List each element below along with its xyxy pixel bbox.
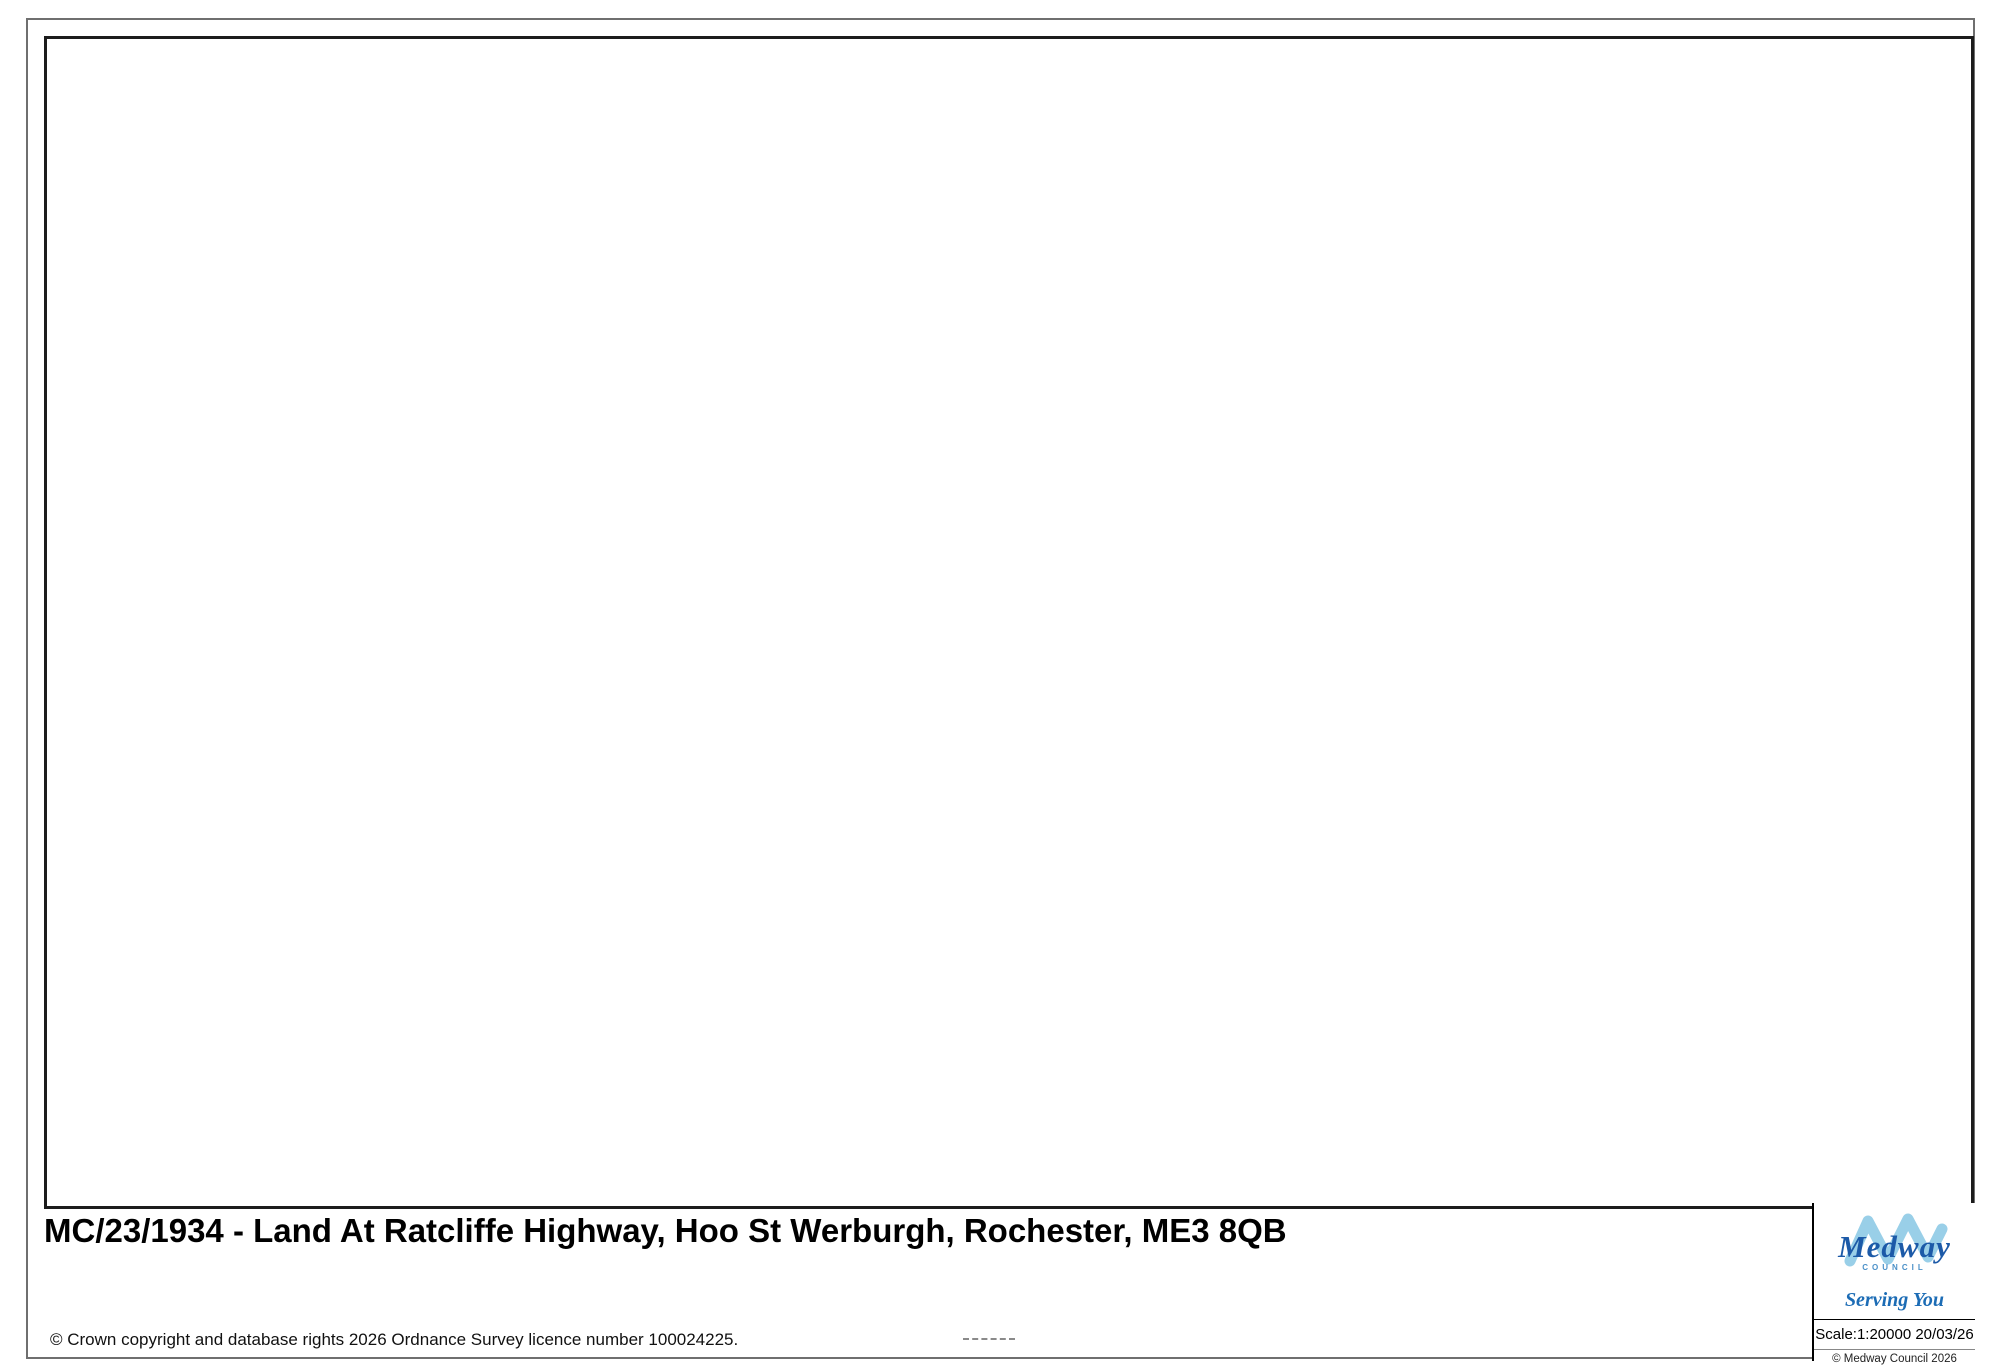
map-label-62: 62: [764, 559, 793, 585]
map-label-sand-: Sand &: [1756, 662, 1851, 691]
map-label-fm: Fm: [596, 540, 639, 570]
map-label-tu: Tu: [1943, 76, 1968, 110]
map-label-h-o-o: H O O: [102, 152, 388, 214]
map-label-43: 43: [1135, 290, 1167, 319]
map-label-hoo-st: Hoo St: [1399, 393, 1595, 457]
map-label-beluncle: Beluncle: [1806, 293, 1917, 322]
map-label-lower: Lower: [701, 1113, 810, 1153]
map-label-chattenden: Chattenden: [213, 820, 450, 860]
compass-n: N: [1883, 46, 1902, 76]
map-label-hoo-lodge: Hoo Lodge: [1057, 1016, 1199, 1045]
map-label-deangate: Deangate: [1117, 246, 1243, 275]
map-label-17: 17: [1733, 420, 1762, 446]
map-label-wood: Wood: [46, 445, 119, 473]
compass-w: W: [1785, 135, 1810, 165]
map-label-upnor: Upnor: [703, 1156, 812, 1196]
map-label-hill: Hill: [557, 1044, 597, 1073]
map-label-40: 40: [842, 934, 874, 963]
map-label-chattenden: Chattenden: [590, 497, 745, 527]
scale-mark: [963, 1338, 1015, 1340]
compass-rose: N S W E: [1785, 46, 1968, 254]
page-title: MC/23/1934 - Land At Ratcliffe Highway, …: [44, 1212, 1287, 1250]
map-label-saxon-shore-way: Saxon Shore Way: [1066, 936, 1398, 968]
map-label-acad: Acad: [938, 707, 1006, 737]
map-label-werburgh: Werburgh: [1400, 467, 1680, 531]
map-label-fm: Fm: [1892, 326, 1934, 355]
map-label-great: Great: [46, 378, 116, 406]
map-label-medway: MEDWAY: [465, 36, 1060, 54]
map-label-court: Court: [1804, 845, 1875, 874]
spot-dot: [1328, 816, 1346, 834]
parking-symbol: P: [661, 1061, 706, 1107]
map-label-abbots: Abbots: [1807, 806, 1897, 835]
compass-s: S: [1883, 224, 1900, 254]
medway-logo-name: Medway: [1814, 1229, 1975, 1265]
medway-tagline: Serving You: [1814, 1289, 1975, 1312]
map-label-street: Street: [1704, 36, 1800, 60]
map-label-lodge-hill: Lodge Hill: [267, 88, 387, 115]
map-label-ttenden: ttenden: [46, 410, 139, 438]
map-canvas: N S W E etMEDWAYLodge HillH O OP E N I N…: [44, 36, 1968, 1203]
scale-and-date: Scale:1:20000 20/03/26: [1814, 1319, 1975, 1343]
map-label-et: et: [51, 43, 73, 69]
medway-logo: Medway COUNCIL: [1814, 1203, 1975, 1289]
map-label-stonebridge: Stonebridge: [884, 639, 1051, 670]
map-label-unt: unt: [56, 841, 95, 869]
medway-logo-box: Medway COUNCIL Serving You Scale:1:20000…: [1812, 1203, 1975, 1361]
os-copyright: © Crown copyright and database rights 20…: [50, 1330, 738, 1350]
map-label-gravel-pit: Gravel Pit: [1748, 701, 1875, 730]
deangate-roundabout: [1135, 343, 1165, 373]
map-label-30: 30: [1839, 101, 1874, 134]
map-label-street: Street: [792, 784, 875, 815]
map-label-p-e-n-i-n-s-u-l-a: P E N I N S U L A: [491, 153, 1075, 215]
map-label-30: 30: [945, 892, 975, 919]
map-label-17: 17: [1207, 731, 1236, 757]
council-copyright: © Medway Council 2026: [1814, 1349, 1975, 1365]
map-label-broad: Broad: [802, 747, 885, 778]
medway-logo-council: COUNCIL: [1814, 1263, 1975, 1272]
map-label-beacon: Beacon: [528, 1008, 626, 1037]
plan-page: N S W E etMEDWAYLodge HillH O OP E N I N…: [0, 0, 2000, 1372]
map-label-tile-barn: Tile Barn: [1452, 324, 1567, 353]
map-label-ph: PH: [945, 557, 987, 587]
map-label-marina: Marina: [1116, 1171, 1205, 1200]
map-label-ph: PH: [587, 1175, 627, 1204]
map-label-ho: Ho: [1931, 1121, 1968, 1151]
map-label-74: 74: [367, 149, 395, 174]
map-label-59: 59: [433, 1155, 462, 1181]
